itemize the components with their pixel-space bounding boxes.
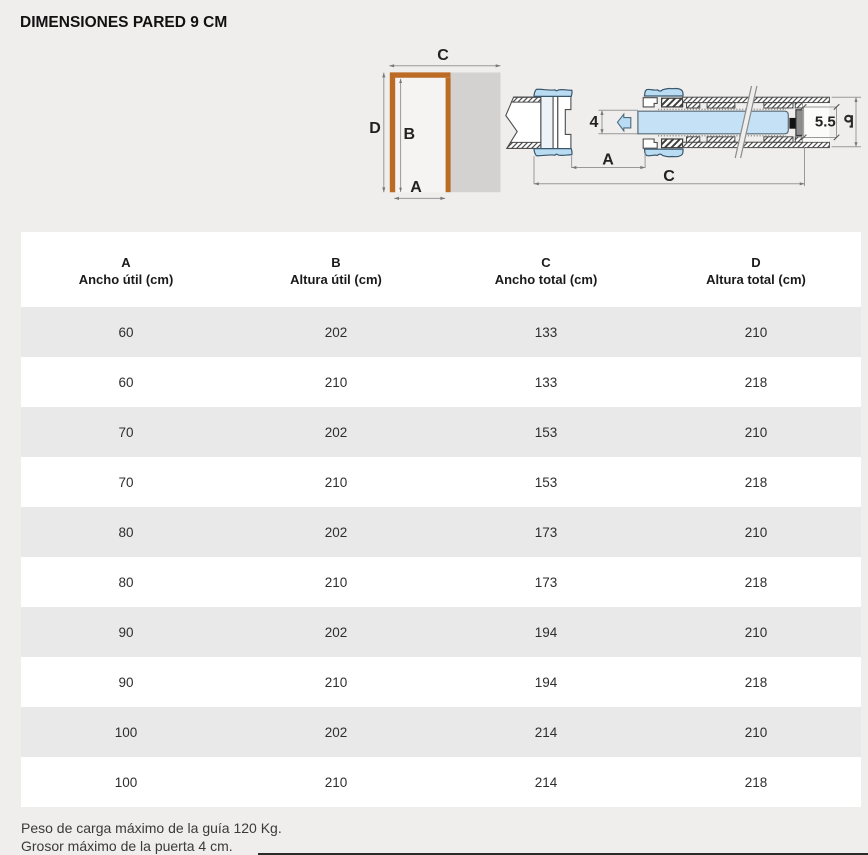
svg-text:C: C: [663, 168, 675, 185]
svg-text:5.5: 5.5: [815, 114, 836, 131]
svg-text:B: B: [404, 126, 416, 143]
svg-text:D: D: [369, 120, 381, 137]
svg-text:A: A: [410, 179, 422, 196]
svg-text:4: 4: [590, 114, 599, 131]
svg-text:C: C: [437, 47, 449, 64]
svg-text:A: A: [602, 152, 614, 169]
